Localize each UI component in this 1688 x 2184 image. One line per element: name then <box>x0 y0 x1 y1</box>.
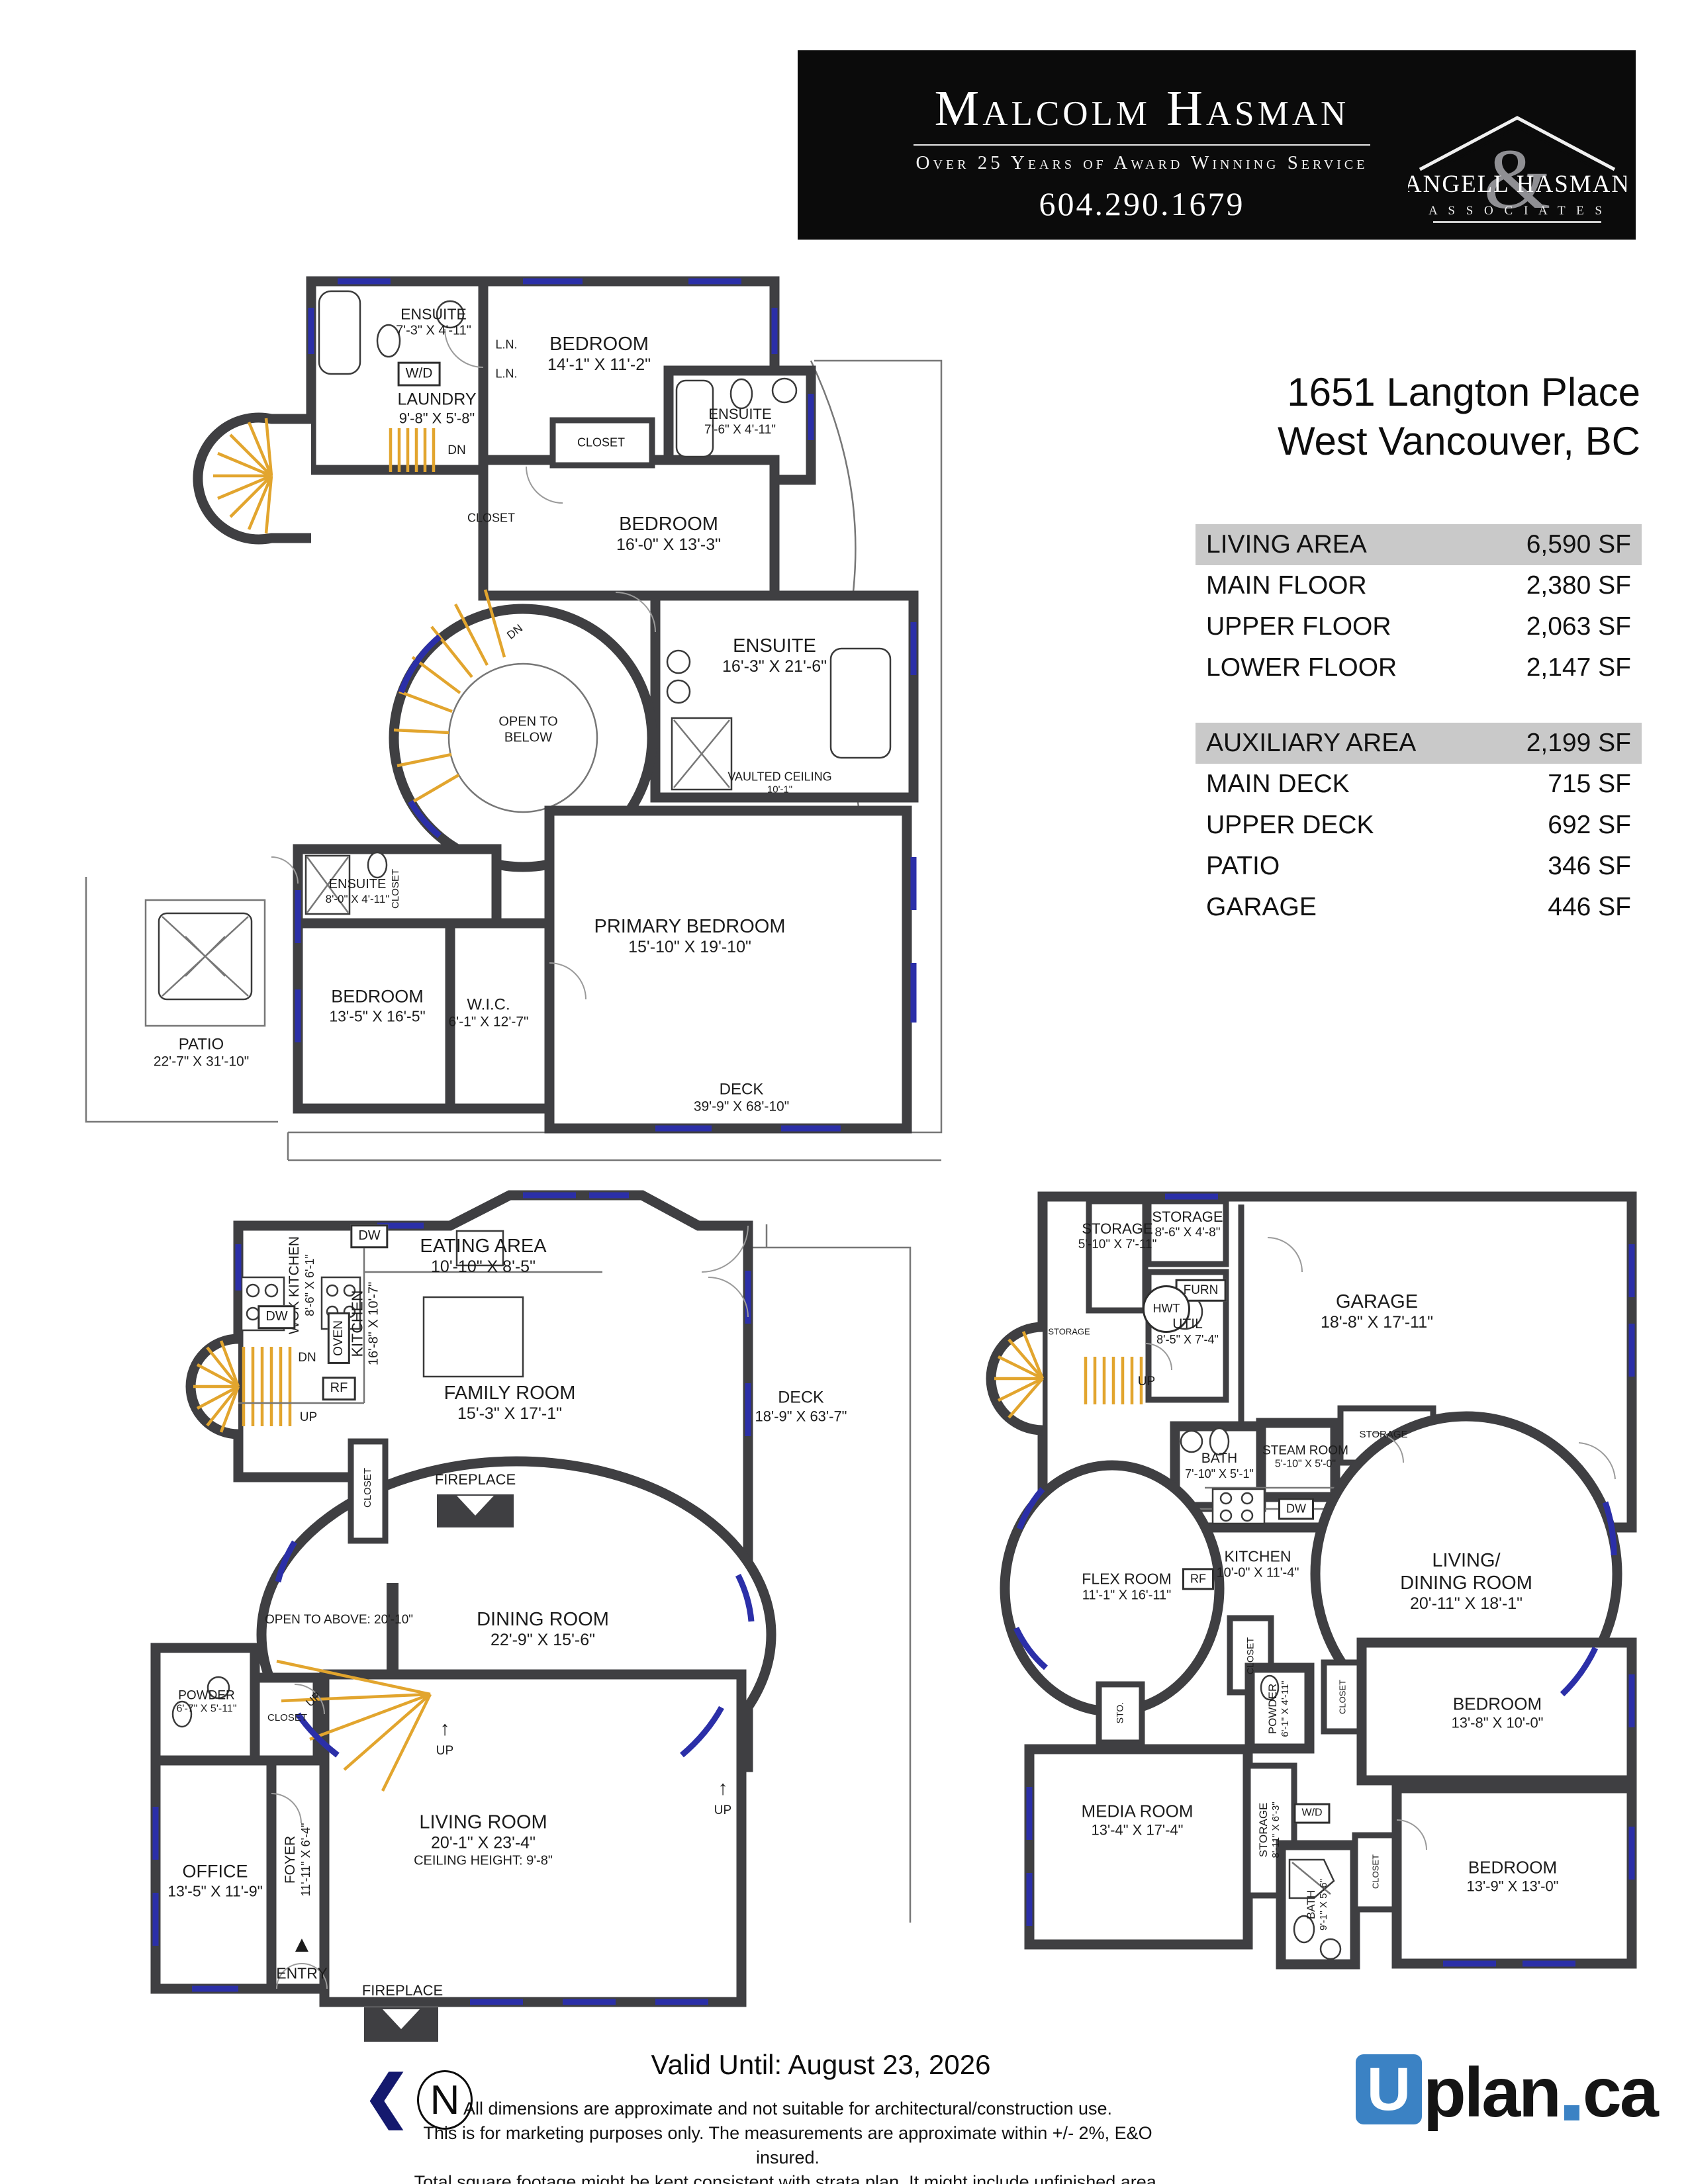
room-label: FIREPLACE <box>362 1982 443 1999</box>
agent-phone: 604.290.1679 <box>818 185 1466 223</box>
room-label: ENSUITE7'-6" X 4'-11" <box>704 406 776 437</box>
room-label: OFFICE13'-5" X 11'-9" <box>167 1862 263 1901</box>
room-label: KITCHEN16'-8" X 10'-7" <box>349 1282 383 1365</box>
room-label: PRIMARY BEDROOM15'-10" X 19'-10" <box>594 915 786 958</box>
area-table-row: LOWER FLOOR2,147 SF <box>1196 647 1642 688</box>
room-label: CLOSET <box>362 1468 374 1508</box>
brokerage-logo: & ANGELL HASMAN A S S O C I A T E S <box>1408 109 1626 228</box>
room-label: MEDIA ROOM13'-4" X 17'-4" <box>1081 1801 1193 1839</box>
room-label: STORAGE5'-10" X 7'-11" <box>1078 1220 1157 1252</box>
room-label: BEDROOM13'-5" X 16'-5" <box>329 987 425 1026</box>
room-label: UP <box>1138 1375 1155 1389</box>
area-row-label: MAIN FLOOR <box>1206 571 1367 600</box>
room-label: DN <box>504 622 526 643</box>
disclaimer-line: This is for marketing purposes only. The… <box>391 2121 1185 2170</box>
room-label: CLOSET <box>467 511 515 525</box>
lower-floor-plan: STORAGE5'-10" X 7'-11"STORAGE8'-6" X 4'-… <box>980 1158 1662 1979</box>
area-row-value: 715 SF <box>1548 770 1631 799</box>
uplan-ca-text: ca <box>1583 2061 1657 2124</box>
room-label: DN <box>447 443 465 458</box>
room-label: CLOSET <box>1370 1854 1380 1889</box>
address-line1: 1651 Langton Place <box>986 368 1640 417</box>
area-table-row: PATIO346 SF <box>1196 846 1642 887</box>
room-label: DN <box>298 1351 316 1365</box>
room-label: CLOSET <box>267 1712 307 1724</box>
area-table-row: UPPER FLOOR2,063 SF <box>1196 606 1642 647</box>
auxiliary-area-table: AUXILIARY AREA2,199 SFMAIN DECK715 SFUPP… <box>1196 723 1642 928</box>
room-label: W/D <box>1293 1803 1330 1824</box>
area-row-value: 2,147 SF <box>1526 653 1631 682</box>
room-label: RF <box>322 1377 356 1400</box>
room-label: LIVING/DINING ROOM20'-11" X 18'-1" <box>1400 1549 1532 1614</box>
room-label: FOYER11'-11" X 6'-4" <box>283 1823 313 1896</box>
room-label: FIREPLACE <box>435 1471 516 1488</box>
room-label: ▲ <box>291 1931 313 1958</box>
agent-name: Malcolm Hasman <box>818 82 1466 135</box>
room-label: BATH9'-1" X 5'-6" <box>1305 1879 1330 1931</box>
room-label: LAUNDRY9'-8" X 5'-8" <box>397 390 476 426</box>
room-label: BATH7'-10" X 5'-1" <box>1185 1451 1254 1481</box>
room-label: BEDROOM16'-0" X 13'-3" <box>616 513 721 555</box>
area-row-value: 2,063 SF <box>1526 612 1631 641</box>
room-label: BEDROOM13'-8" X 10'-0" <box>1452 1694 1544 1732</box>
room-label: STEAM ROOM5'-10" X 5'-0" <box>1262 1443 1348 1471</box>
main-floor-labels: DWWOK KITCHEN8'-6" X 6'-1"EATING AREA10'… <box>139 1185 980 2052</box>
area-row-label: GARAGE <box>1206 893 1317 922</box>
area-row-value: 346 SF <box>1548 852 1631 881</box>
room-label: PATIO22'-7" X 31'-10" <box>154 1035 249 1070</box>
area-row-label: LOWER FLOOR <box>1206 653 1397 682</box>
room-label: DW <box>258 1305 295 1329</box>
room-label: ENTRY <box>276 1964 328 1982</box>
disclaimer-line: All dimensions are approximate and not s… <box>391 2097 1185 2121</box>
room-label: ENSUITE8'-0" X 4'-11" <box>326 877 390 906</box>
area-table-row: MAIN FLOOR2,380 SF <box>1196 565 1642 606</box>
room-label: POWDER6'-7" X 5'-11" <box>177 1688 237 1715</box>
area-table-row: UPPER DECK692 SF <box>1196 805 1642 846</box>
agent-block: Malcolm Hasman Over 25 Years of Award Wi… <box>818 50 1466 240</box>
room-label: POWDER6'-1" X 4'-11" <box>1266 1680 1291 1737</box>
room-label: GARAGE18'-8" X 17'-11" <box>1321 1291 1433 1333</box>
valid-until: Valid Until: August 23, 2026 <box>424 2049 1218 2081</box>
room-label: STO. <box>1115 1702 1126 1723</box>
room-label: L.N. <box>495 367 517 381</box>
room-label: UP <box>300 1410 317 1425</box>
upper-floor-labels: ENSUITE7'-3" X 4'-11"W/DL.N.L.N.LAUNDRY9… <box>60 261 947 1165</box>
area-row-label: MAIN DECK <box>1206 770 1350 799</box>
area-row-label: PATIO <box>1206 852 1280 881</box>
area-row-value: 2,380 SF <box>1526 571 1631 600</box>
area-table-row: LIVING AREA6,590 SF <box>1196 524 1642 565</box>
room-label: DW <box>1278 1498 1314 1520</box>
uplan-dot-icon <box>1564 2105 1579 2120</box>
room-label: UP <box>436 1744 453 1758</box>
room-label: ENSUITE7'-3" X 4'-11" <box>396 306 471 340</box>
room-label: OPEN TO ABOVE: 20'-10" <box>265 1613 413 1627</box>
area-row-value: 6,590 SF <box>1526 530 1631 559</box>
room-label: KITCHEN10'-0" X 11'-4" <box>1217 1548 1299 1582</box>
disclaimer-line: Total square footage might be kept consi… <box>391 2170 1185 2184</box>
room-label: LIVING ROOM20'-1" X 23'-4"CEILING HEIGHT… <box>414 1811 553 1868</box>
area-table-row: MAIN DECK715 SF <box>1196 764 1642 805</box>
uplan-u-icon: U <box>1356 2054 1422 2124</box>
room-label: EATING AREA10'-10" X 8'-5" <box>420 1235 546 1277</box>
area-table-row: AUXILIARY AREA2,199 SF <box>1196 723 1642 764</box>
area-row-label: LIVING AREA <box>1206 530 1367 559</box>
room-label: DECK18'-9" X 63'-7" <box>755 1388 847 1424</box>
room-label: CLOSET <box>390 869 402 909</box>
flyer-page: Malcolm Hasman Over 25 Years of Award Wi… <box>0 0 1688 2184</box>
area-row-label: UPPER FLOOR <box>1206 612 1391 641</box>
room-label: UP <box>304 1690 324 1710</box>
uplan-logo: U plan ca <box>1356 2054 1657 2124</box>
room-label: BEDROOM14'-1" X 11'-2" <box>547 333 651 375</box>
room-label: BEDROOM13'-9" X 13'-0" <box>1467 1858 1559 1895</box>
upper-floor-plan: ENSUITE7'-3" X 4'-11"W/DL.N.L.N.LAUNDRY9… <box>60 261 947 1165</box>
room-label: UP <box>714 1803 731 1818</box>
room-label: ENSUITE16'-3" X 21'-6" <box>722 635 827 677</box>
divider-line <box>914 144 1370 146</box>
room-label: L.N. <box>495 338 517 351</box>
living-area-table: LIVING AREA6,590 SFMAIN FLOOR2,380 SFUPP… <box>1196 524 1642 688</box>
area-row-value: 446 SF <box>1548 893 1631 922</box>
room-label: OPEN TOBELOW <box>498 714 557 745</box>
room-label: RF <box>1182 1568 1214 1590</box>
room-label: FAMILY ROOM15'-3" X 17'-1" <box>444 1382 576 1424</box>
area-table-row: GARAGE446 SF <box>1196 887 1642 928</box>
room-label: UTIL8'-5" X 7'-4" <box>1156 1316 1219 1347</box>
agent-tagline: Over 25 Years of Award Winning Service <box>818 152 1466 174</box>
disclaimer-text: All dimensions are approximate and not s… <box>391 2097 1185 2184</box>
brokerage-name-text: ANGELL HASMAN <box>1408 171 1626 198</box>
room-label: STORAGE <box>1048 1326 1090 1336</box>
room-label: FLEX ROOM11'-1" X 16'-11" <box>1082 1570 1171 1604</box>
property-address: 1651 Langton Place West Vancouver, BC <box>986 368 1640 466</box>
header-banner: Malcolm Hasman Over 25 Years of Award Wi… <box>798 50 1636 240</box>
area-row-value: 2,199 SF <box>1526 729 1631 758</box>
room-label: DW <box>350 1224 388 1248</box>
room-label: STORAGE <box>1359 1429 1407 1441</box>
area-row-label: UPPER DECK <box>1206 811 1374 840</box>
room-label: DINING ROOM22'-9" X 15'-6" <box>477 1608 609 1651</box>
uplan-plan-text: plan <box>1423 2061 1560 2124</box>
room-label: CLOSET <box>1245 1637 1256 1674</box>
area-row-value: 692 SF <box>1548 811 1631 840</box>
room-label: W.I.C.6'-1" X 12'-7" <box>449 995 529 1030</box>
room-label: VAULTED CEILING10'-1" <box>727 770 831 796</box>
room-label: W/D <box>398 362 441 387</box>
main-floor-plan: DWWOK KITCHEN8'-6" X 6'-1"EATING AREA10'… <box>139 1185 980 2052</box>
address-line2: West Vancouver, BC <box>986 417 1640 466</box>
area-tables: LIVING AREA6,590 SFMAIN FLOOR2,380 SFUPP… <box>1196 524 1642 928</box>
brokerage-associates-text: A S S O C I A T E S <box>1429 204 1606 218</box>
room-label: CLOSET <box>1337 1680 1347 1714</box>
room-label: OVEN <box>328 1312 350 1364</box>
room-label: ↑ <box>440 1717 450 1740</box>
area-row-label: AUXILIARY AREA <box>1206 729 1416 758</box>
room-label: STORAGE8'-11" X 6'-3" <box>1257 1801 1282 1858</box>
room-label: STORAGE8'-6" X 4'-8" <box>1152 1208 1223 1240</box>
room-label: ↑ <box>718 1776 728 1799</box>
room-label: CLOSET <box>577 435 625 449</box>
lower-floor-labels: STORAGE5'-10" X 7'-11"STORAGE8'-6" X 4'-… <box>980 1158 1662 1979</box>
room-label: DECK39'-9" X 68'-10" <box>694 1080 789 1115</box>
